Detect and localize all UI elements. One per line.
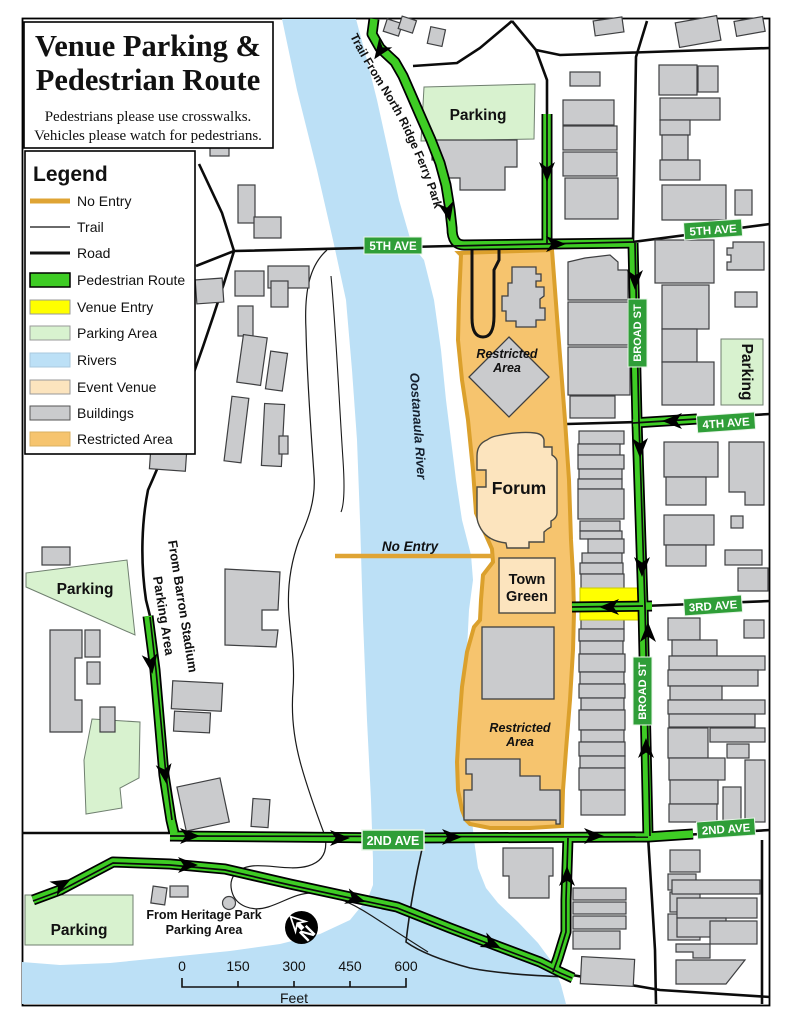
svg-text:Rivers: Rivers <box>77 352 117 368</box>
svg-text:Restricted: Restricted <box>489 721 550 735</box>
svg-text:Area: Area <box>505 735 534 749</box>
svg-text:450: 450 <box>338 958 362 974</box>
svg-text:Pedestrian Route: Pedestrian Route <box>77 272 185 288</box>
svg-text:Venue Parking &: Venue Parking & <box>35 29 261 63</box>
svg-text:Vehicles please watch for pede: Vehicles please watch for pedestrians. <box>34 128 262 144</box>
svg-text:No Entry: No Entry <box>77 193 131 209</box>
svg-text:Parking Area: Parking Area <box>77 325 157 341</box>
svg-text:Pedestrians please use crosswa: Pedestrians please use crosswalks. <box>45 109 252 125</box>
svg-text:Pedestrian Route: Pedestrian Route <box>36 63 260 97</box>
svg-text:From Heritage Park: From Heritage Park <box>146 908 261 922</box>
svg-text:Parking: Parking <box>51 922 108 939</box>
svg-text:BROAD ST: BROAD ST <box>637 662 649 720</box>
svg-text:Buildings: Buildings <box>77 405 134 421</box>
svg-text:Parking Area: Parking Area <box>166 923 244 937</box>
svg-text:Event Venue: Event Venue <box>77 379 157 395</box>
svg-text:Area: Area <box>492 361 521 375</box>
svg-text:300: 300 <box>282 958 306 974</box>
svg-text:Parking: Parking <box>738 344 755 401</box>
svg-text:2ND AVE: 2ND AVE <box>367 834 420 848</box>
svg-text:0: 0 <box>178 958 186 974</box>
svg-text:Forum: Forum <box>492 478 546 498</box>
svg-text:Road: Road <box>77 245 110 261</box>
svg-text:No Entry: No Entry <box>382 539 440 554</box>
svg-text:Restricted Area: Restricted Area <box>77 431 173 447</box>
svg-text:Legend: Legend <box>33 163 108 186</box>
svg-text:Restricted: Restricted <box>476 347 537 361</box>
svg-text:Town: Town <box>509 572 546 588</box>
svg-text:Green: Green <box>506 589 548 605</box>
svg-text:BROAD ST: BROAD ST <box>632 304 644 362</box>
svg-text:Feet: Feet <box>280 990 308 1006</box>
svg-text:5TH AVE: 5TH AVE <box>369 241 417 253</box>
svg-text:Venue Entry: Venue Entry <box>77 299 153 315</box>
svg-text:150: 150 <box>226 958 250 974</box>
svg-text:Parking: Parking <box>450 107 507 124</box>
svg-text:Parking: Parking <box>57 581 114 598</box>
svg-text:Trail: Trail <box>77 219 104 235</box>
svg-text:600: 600 <box>394 958 418 974</box>
